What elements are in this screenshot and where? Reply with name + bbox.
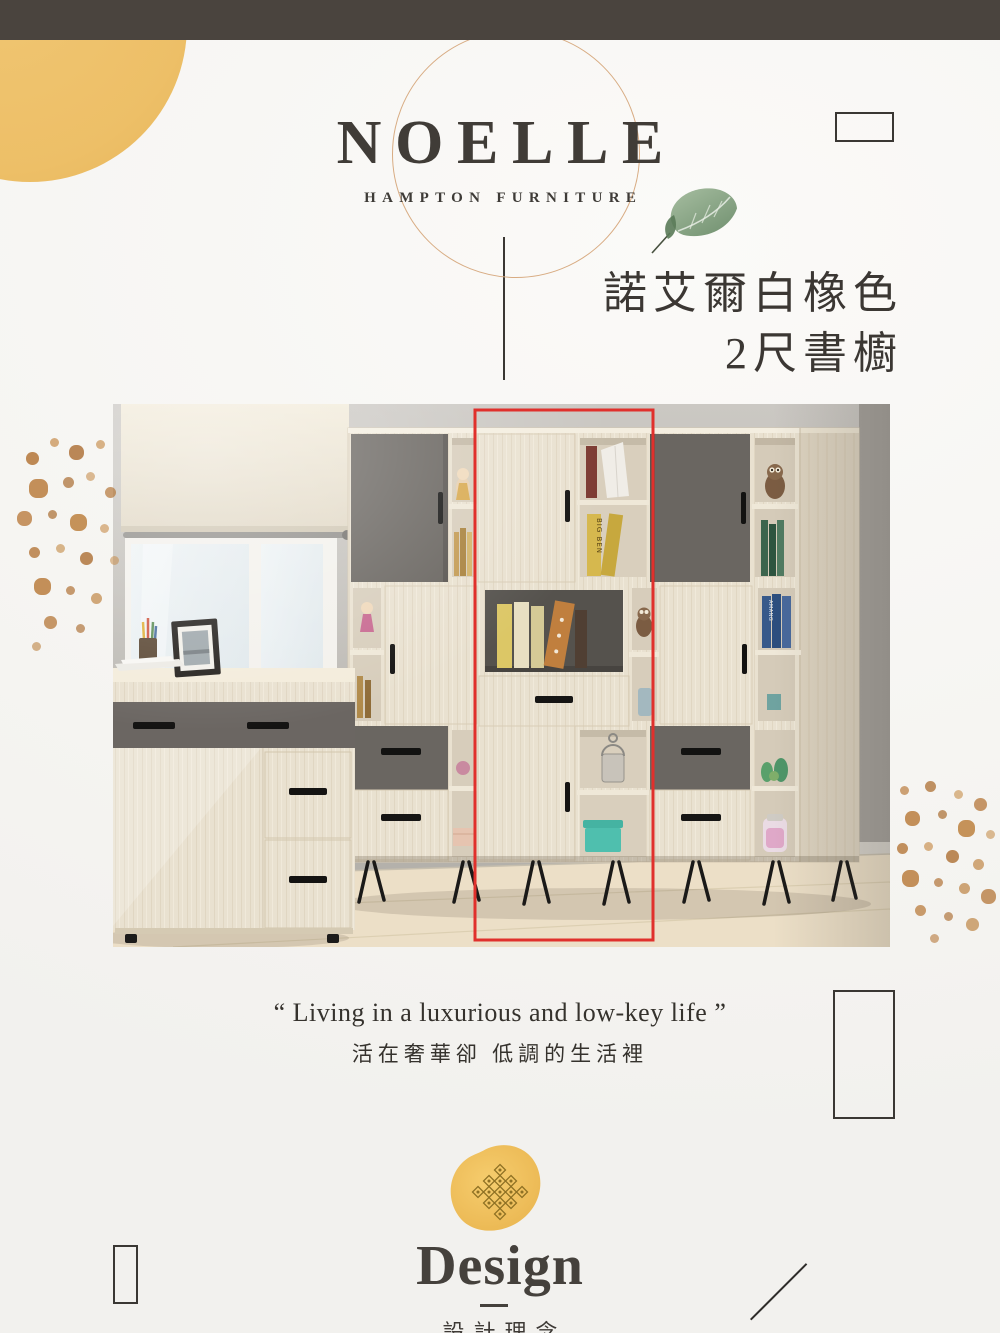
product-title: 諾艾爾白橡色 2尺書櫥 — [603, 268, 903, 380]
leaf-icon — [648, 183, 753, 263]
paint-splatter-left — [28, 438, 33, 443]
page: NOELLE HAMPTON FURNITURE 諾艾爾白橡色 2尺書櫥 — [0, 0, 1000, 1333]
quote-chinese: 活在奢華卻 低調的生活裡 — [0, 1038, 1000, 1068]
product-title-line1: 諾艾爾白橡色 — [603, 268, 903, 320]
room-illustration: BIG BEN — [113, 404, 890, 947]
design-section: Design 設計理念 — [0, 1142, 1000, 1333]
design-subheading: 設計理念 — [0, 1315, 1000, 1333]
quote-english: “ Living in a luxurious and low-key life… — [0, 998, 1000, 1028]
design-heading: Design — [0, 1234, 1000, 1298]
paint-splatter-right — [898, 782, 903, 787]
product-photo: BIG BEN — [113, 404, 890, 947]
brand-subtitle: HAMPTON FURNITURE — [0, 190, 1000, 207]
quote-block: “ Living in a luxurious and low-key life… — [0, 998, 1000, 1068]
brand-name: NOELLE — [0, 108, 1000, 179]
top-bar — [0, 0, 1000, 40]
product-title-line2: 2尺書櫥 — [603, 328, 903, 380]
design-underline — [480, 1304, 508, 1307]
